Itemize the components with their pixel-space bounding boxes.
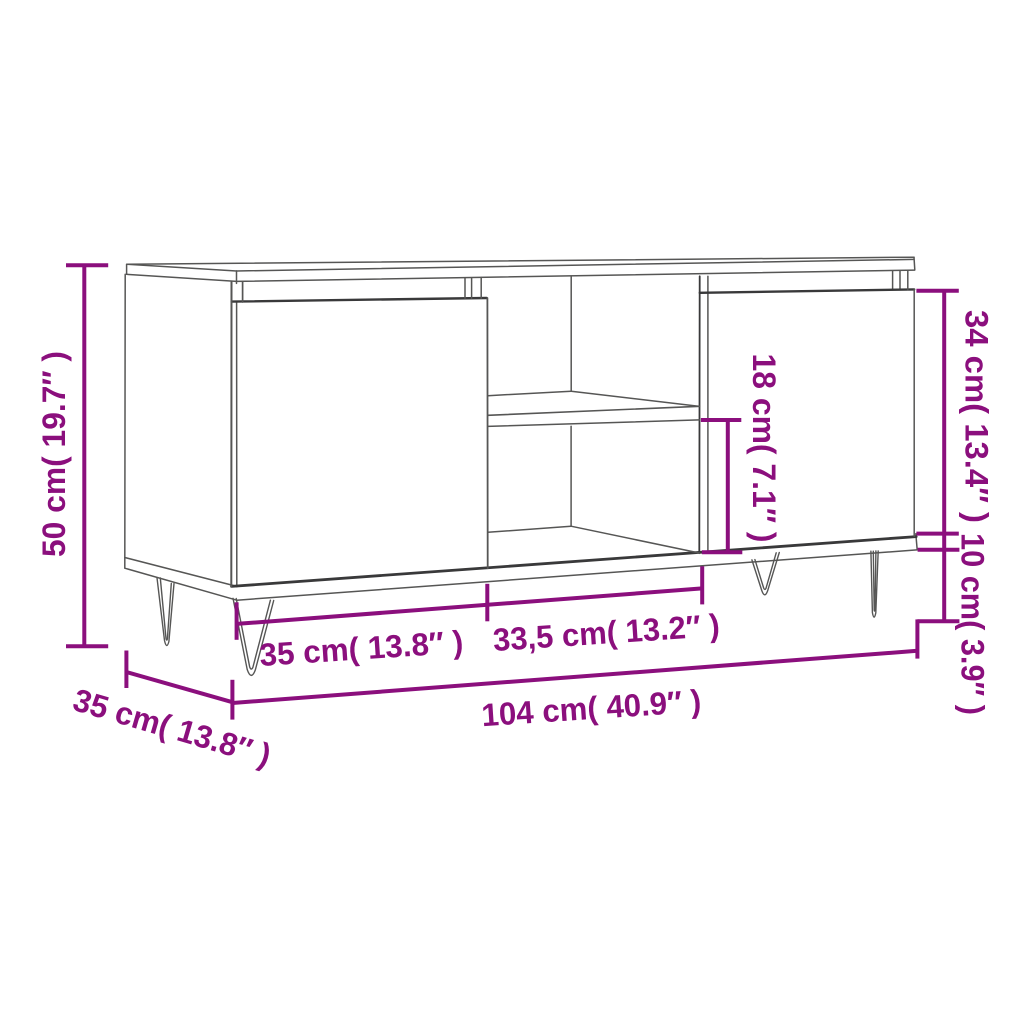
svg-text:10 cm( 3.9″ ): 10 cm( 3.9″ ) <box>955 533 991 715</box>
svg-text:18 cm( 7.1″ ): 18 cm( 7.1″ ) <box>746 354 782 543</box>
svg-text:34 cm( 13.4″ ): 34 cm( 13.4″ ) <box>959 310 995 523</box>
svg-text:50 cm( 19.7″ ): 50 cm( 19.7″ ) <box>36 351 72 557</box>
